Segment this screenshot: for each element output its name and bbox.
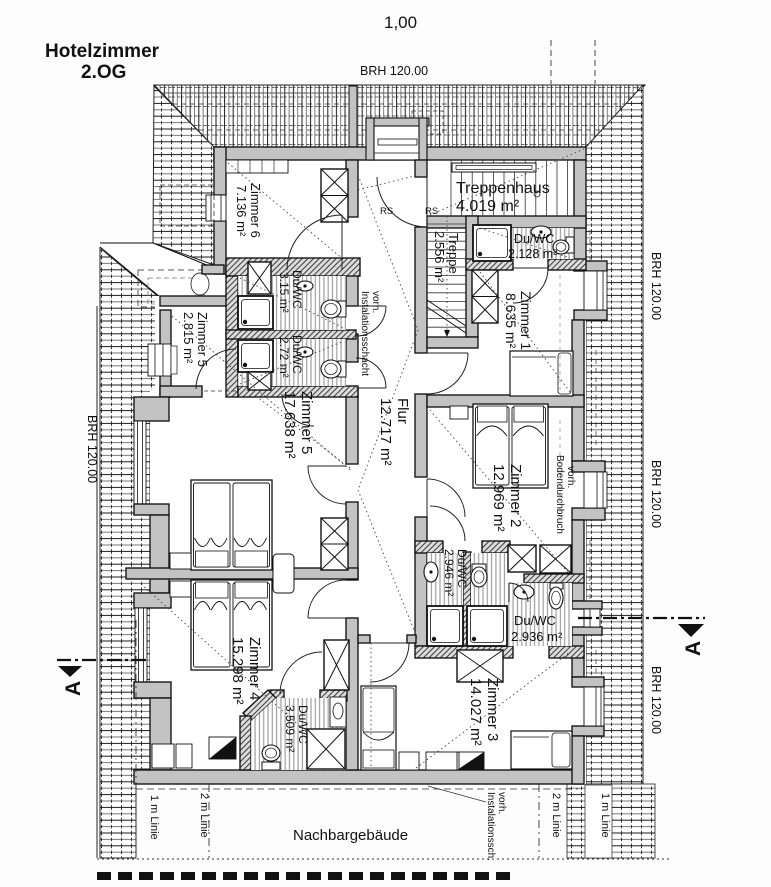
svg-text:Zimmer 5: Zimmer 5 xyxy=(195,312,210,367)
svg-text:BRH 120.00: BRH 120.00 xyxy=(649,252,663,320)
svg-text:Du/WC: Du/WC xyxy=(514,232,554,246)
svg-text:7.136 m²: 7.136 m² xyxy=(234,185,249,237)
svg-text:Instalationssch.: Instalationssch. xyxy=(485,792,496,861)
svg-text:vorh.: vorh. xyxy=(370,291,381,313)
svg-text:Du/WC: Du/WC xyxy=(290,335,304,374)
svg-text:Zimmer 2: Zimmer 2 xyxy=(507,464,524,527)
svg-text:2.815 m²: 2.815 m² xyxy=(181,312,196,364)
svg-text:1 m Linie: 1 m Linie xyxy=(599,793,611,838)
svg-text:vorh.: vorh. xyxy=(496,792,507,814)
svg-text:BRH 120.00: BRH 120.00 xyxy=(649,460,663,528)
svg-text:17.638 m²: 17.638 m² xyxy=(281,391,298,459)
svg-text:A: A xyxy=(62,681,85,696)
svg-text:Du/WC: Du/WC xyxy=(514,613,556,628)
svg-text:Zimmer 4: Zimmer 4 xyxy=(246,637,263,700)
svg-text:BRH 120.00: BRH 120.00 xyxy=(85,415,99,483)
svg-text:3.509 m²: 3.509 m² xyxy=(283,705,297,752)
svg-text:14.027 m²: 14.027 m² xyxy=(467,678,484,746)
svg-text:RS: RS xyxy=(380,206,393,217)
svg-text:Bodendurchbruch: Bodendurchbruch xyxy=(554,455,565,534)
svg-text:2.946 m²: 2.946 m² xyxy=(442,549,456,596)
svg-text:RS: RS xyxy=(425,206,438,217)
svg-text:1,00: 1,00 xyxy=(384,13,417,32)
svg-text:15.298 m²: 15.298 m² xyxy=(229,637,246,705)
svg-text:Zimmer 3: Zimmer 3 xyxy=(484,678,501,741)
svg-text:Du/WC: Du/WC xyxy=(290,270,304,309)
svg-text:Treppenhaus: Treppenhaus xyxy=(456,180,550,197)
svg-text:Du/WC: Du/WC xyxy=(455,549,469,588)
svg-text:2 m Linie: 2 m Linie xyxy=(198,793,210,838)
svg-text:2.128 m²: 2.128 m² xyxy=(508,247,557,261)
svg-text:2 m Linie: 2 m Linie xyxy=(550,793,562,838)
svg-text:2.936 m²: 2.936 m² xyxy=(511,629,563,644)
svg-text:Hotelzimmer: Hotelzimmer xyxy=(45,41,160,62)
svg-text:Flur: Flur xyxy=(394,398,411,424)
svg-text:BRH 120.00: BRH 120.00 xyxy=(360,64,428,78)
svg-text:1 m Linie: 1 m Linie xyxy=(148,795,160,840)
svg-text:12.969 m²: 12.969 m² xyxy=(490,464,507,532)
svg-text:A: A xyxy=(682,641,705,656)
svg-text:Nachbargebäude: Nachbargebäude xyxy=(293,827,408,844)
svg-text:Du/WC: Du/WC xyxy=(296,705,310,744)
svg-text:4.019 m²: 4.019 m² xyxy=(456,198,520,215)
svg-text:8.635 m²: 8.635 m² xyxy=(503,293,519,349)
svg-text:2.72 m²: 2.72 m² xyxy=(277,337,291,378)
svg-text:Zimmer 6: Zimmer 6 xyxy=(248,183,263,238)
svg-text:Instalationsschacht: Instalationsschacht xyxy=(359,291,370,376)
svg-text:2.OG: 2.OG xyxy=(81,62,126,83)
svg-text:3.15 m²: 3.15 m² xyxy=(277,272,291,313)
svg-text:2.556 m²: 2.556 m² xyxy=(432,231,447,283)
svg-text:BRH 120.00: BRH 120.00 xyxy=(649,666,663,734)
svg-text:vorh.: vorh. xyxy=(565,466,576,488)
svg-text:Treppe: Treppe xyxy=(446,233,461,274)
